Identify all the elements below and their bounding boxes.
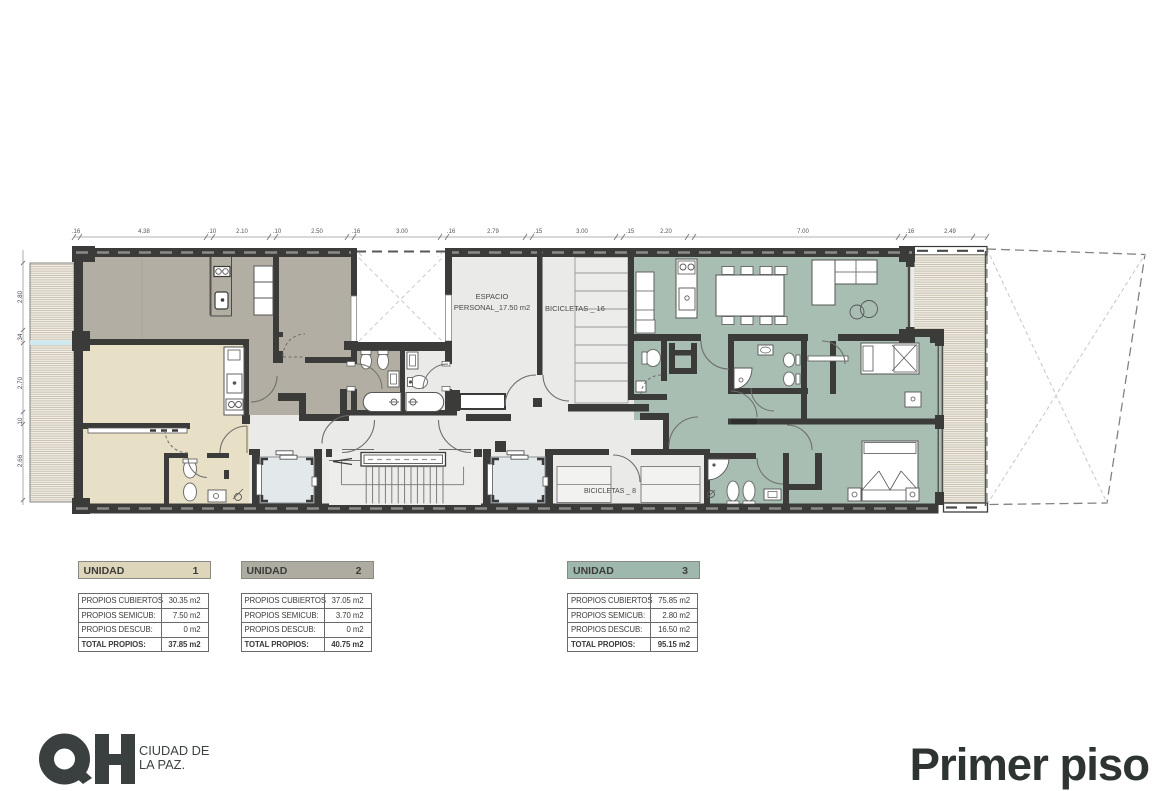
svg-text:BICICLETAS _ 16: BICICLETAS _ 16 (545, 304, 605, 313)
svg-text:4.38: 4.38 (138, 229, 150, 235)
svg-text:2.79: 2.79 (487, 229, 499, 235)
svg-text:2.10: 2.10 (236, 229, 248, 235)
svg-text:.16: .16 (906, 229, 915, 235)
svg-text:2.20: 2.20 (660, 229, 672, 235)
svg-text:2.70: 2.70 (17, 376, 24, 389)
svg-text:.10: .10 (208, 229, 217, 235)
svg-text:.34: .34 (17, 333, 24, 342)
svg-text:.16: .16 (447, 229, 456, 235)
svg-text:.10: .10 (273, 229, 282, 235)
svg-text:.15: .15 (626, 229, 635, 235)
svg-text:ESPACIO: ESPACIO (476, 292, 509, 301)
svg-text:3.00: 3.00 (396, 229, 408, 235)
svg-text:2.50: 2.50 (311, 229, 323, 235)
svg-text:3.00: 3.00 (576, 229, 588, 235)
svg-text:2.80: 2.80 (17, 290, 24, 303)
svg-text:.16: .16 (72, 229, 81, 235)
svg-text:7.00: 7.00 (797, 229, 809, 235)
svg-text:PERSONAL_17.50 m2: PERSONAL_17.50 m2 (454, 303, 530, 312)
svg-text:.16: .16 (352, 229, 361, 235)
svg-text:2.49: 2.49 (944, 229, 956, 235)
svg-text:.15: .15 (534, 229, 543, 235)
svg-text:BICICLETAS _ 8: BICICLETAS _ 8 (584, 488, 636, 495)
svg-text:.10: .10 (17, 417, 24, 426)
svg-text:LA PAZ.: LA PAZ. (139, 757, 185, 772)
svg-text:CIUDAD DE: CIUDAD DE (139, 743, 209, 758)
svg-text:2.66: 2.66 (17, 454, 24, 467)
